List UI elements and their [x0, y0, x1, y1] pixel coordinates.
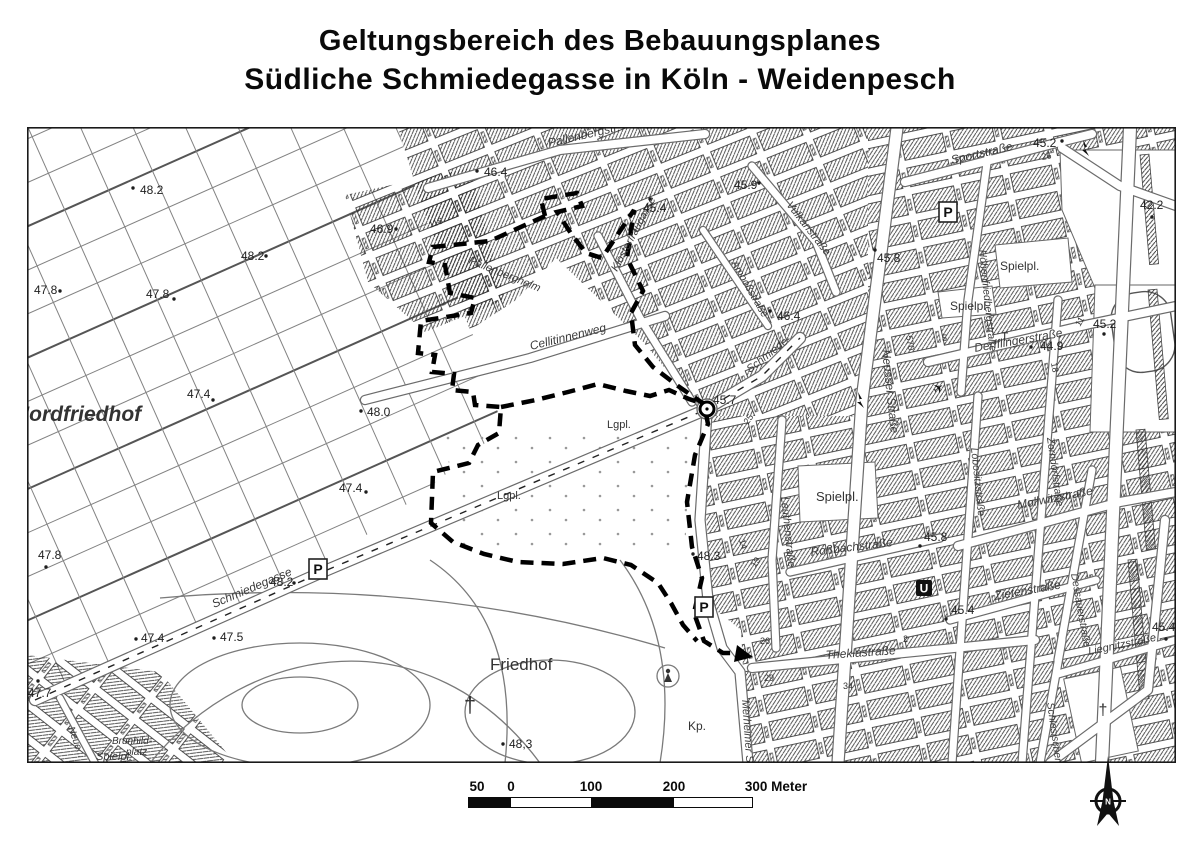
elevation-value: 46.9	[370, 222, 394, 236]
scale-bar-segments	[468, 797, 753, 808]
elevation-value: 45.4	[951, 603, 975, 617]
house-number: 5	[942, 333, 947, 343]
place-label: Spielpl.	[816, 489, 859, 504]
city-map: Pallenbergstr.PallenbergheimKlosterfraug…	[27, 127, 1176, 763]
elevation-value: 48.3	[697, 549, 721, 563]
svg-text:P: P	[699, 599, 708, 615]
bebauungsplan-page: { "title": { "line1": "Geltungsbereich d…	[0, 0, 1200, 848]
elevation-value: 42.2	[1140, 198, 1164, 212]
svg-text:U: U	[920, 582, 929, 596]
elevation-value: 45.7	[713, 393, 737, 407]
compass-needle-top	[1103, 756, 1114, 801]
compass-n-label: N	[1105, 798, 1111, 807]
elevation-value: 46.4	[777, 309, 801, 323]
elevation-value: 45.4	[643, 201, 667, 215]
elevation-value: 47.8	[34, 283, 58, 297]
svg-text:P: P	[943, 204, 952, 220]
elevation-marker: 48.2	[241, 249, 268, 263]
monument-icon	[666, 669, 670, 673]
elevation-value: 47.4	[187, 387, 211, 401]
scale-segment	[469, 798, 511, 807]
elevation-marker: 48.2	[270, 575, 296, 589]
elevation-value: 48.0	[367, 405, 391, 419]
scale-label: 0	[507, 779, 515, 794]
elevation-value: 48.2	[241, 249, 265, 263]
map-title: Geltungsbereich des Bebauungsplanes Südl…	[0, 22, 1200, 100]
elevation-value: 45.8	[924, 530, 948, 544]
svg-text:P: P	[313, 561, 322, 577]
north-arrow: N	[1086, 750, 1132, 834]
map-title-line2: Südliche Schmiedegasse in Köln - Weidenp…	[0, 60, 1200, 100]
place-label: Spielpl	[950, 299, 986, 313]
elevation-value: 47.7	[28, 686, 52, 700]
elevation-value: 45.2	[1093, 317, 1117, 331]
elevation-value: 47.5	[220, 630, 244, 644]
elevation-value: 47.8	[146, 287, 170, 301]
elevation-marker: 45.9	[734, 178, 761, 192]
scale-label: 200	[663, 779, 686, 794]
elevation-value: 46.4	[484, 165, 508, 179]
elevation-value: 48,3	[509, 737, 533, 751]
scale-label: 100	[580, 779, 603, 794]
elevation-value: 44.9	[1040, 339, 1064, 353]
house-number: 26	[1041, 150, 1053, 162]
elevation-value: 48.2	[140, 183, 164, 197]
map-base	[27, 127, 1176, 763]
house-number: 29	[764, 673, 774, 683]
scale-segment	[511, 798, 591, 807]
scale-label: 50	[469, 779, 484, 794]
elevation-marker: 45.8	[873, 248, 900, 265]
house-number: 2	[903, 634, 908, 644]
garden-plots	[445, 435, 690, 555]
elevation-value: 45.2	[1033, 136, 1057, 150]
church-cross-icon: †	[1099, 702, 1108, 719]
scale-label: 300 Meter	[745, 779, 807, 794]
elevation-value: 45.8	[877, 251, 901, 265]
place-label: Nordfriedhof	[27, 403, 143, 426]
elevation-value: 45.4	[1152, 620, 1176, 634]
house-number: 34	[843, 681, 853, 691]
elevation-value: 48.2	[270, 575, 294, 589]
scale-segment	[674, 798, 752, 807]
house-number: 26	[760, 636, 770, 646]
elevation-marker: 45.7	[713, 393, 737, 407]
place-label: Lgpl.	[497, 490, 521, 502]
elevation-value: 47.8	[38, 548, 62, 562]
place-label: Spielpl.	[1000, 259, 1039, 273]
place-label: Brunhild-	[112, 736, 153, 747]
scale-bar: 500100200300 Meter	[440, 775, 860, 820]
north-arrow-svg: N	[1086, 750, 1132, 834]
house-number: 18	[1049, 362, 1061, 374]
elevation-value: 47.4	[339, 481, 363, 495]
church-cross-icon: †	[464, 692, 476, 717]
place-label: T.	[1001, 330, 1010, 344]
place-label: Lgpl.	[607, 419, 631, 431]
scale-segment	[591, 798, 674, 807]
elevation-value: 45.9	[734, 178, 758, 192]
place-label: platz	[125, 747, 147, 758]
place-label: Kp.	[688, 719, 706, 733]
city-map-svg: Pallenbergstr.PallenbergheimKlosterfraug…	[27, 127, 1176, 763]
elevation-value: 47.4	[141, 631, 165, 645]
map-title-line1: Geltungsbereich des Bebauungsplanes	[0, 22, 1200, 60]
place-label: Friedhof	[490, 655, 553, 674]
